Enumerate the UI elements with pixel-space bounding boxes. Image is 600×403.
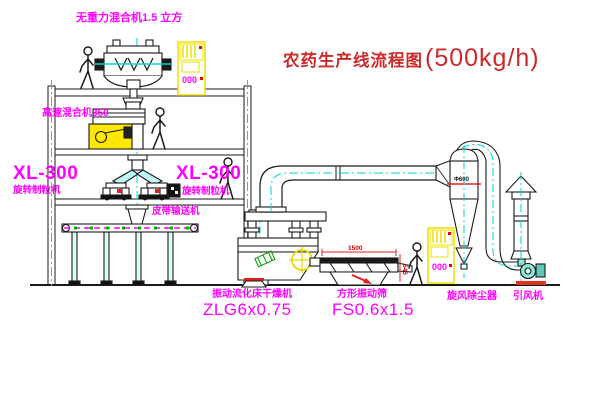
person-figure-1 (80, 47, 93, 88)
granulator-chute (126, 205, 148, 224)
person-figure-2 (152, 108, 165, 149)
label-granulator-name-left: 旋转制粒机 (13, 186, 61, 196)
label-granulator-model-left: XL-300 (13, 164, 78, 183)
cabinet2-indicator-light (448, 232, 451, 235)
exhaust-duct (256, 166, 452, 212)
person-figure-4 (409, 243, 422, 284)
cabinet1-indicator-light2 (200, 77, 203, 80)
label-dryer-name: 振动流化床干燥机 (212, 290, 292, 300)
control-cabinet-2: 000 (428, 228, 454, 283)
pesticide-line-flow-diagram: Φ600 1500 545 (0, 0, 600, 403)
cabinet2-display: 000 (432, 262, 447, 272)
sieve-length-text: 1500 (348, 245, 363, 252)
fluid-bed-dryer (238, 212, 326, 287)
label-gravity-mixer: 无重力混合机1.5 立方 (76, 13, 182, 24)
diagram-title: 农药生产线流程图 (500kg/h) (283, 44, 540, 73)
label-granulator-name-mid: 旋转制粒机 (182, 187, 230, 197)
cabinet1-display: 000 (182, 75, 197, 85)
title-text: 农药生产线流程图 (283, 47, 423, 71)
cabinet1-indicator-light (199, 46, 202, 49)
sieve-height-text: 545 (401, 264, 408, 275)
label-belt-conveyor: 皮带输送机 (152, 207, 200, 217)
vibrating-sieve: 1500 545 (310, 245, 412, 285)
label-sieve-model: FS0.6x1.5 (332, 301, 414, 318)
floor-slab-2 (48, 199, 251, 205)
floor-slab-top (48, 89, 251, 96)
gravity-free-mixer (95, 40, 171, 110)
belt-conveyor (62, 224, 198, 285)
control-cabinet-1: 000 (178, 42, 205, 95)
floor-slab-3 (48, 149, 251, 155)
label-cyclone: 旋风除尘器 (447, 292, 497, 302)
label-dryer-model: ZLG6x0.75 (203, 301, 292, 318)
title-capacity: (500kg/h) (425, 44, 540, 73)
cyclone-diameter-text: Φ600 (454, 177, 470, 183)
y-splitter-duct (106, 155, 167, 188)
label-fan: 引风机 (513, 292, 543, 302)
fan-base (516, 281, 546, 285)
cabinet2-indicator-light2 (449, 264, 452, 267)
label-sieve-name: 方形振动筛 (337, 290, 387, 300)
label-granulator-model-mid: XL-300 (176, 164, 241, 183)
label-high-speed-mixer: 高速混合机350 (42, 109, 109, 119)
